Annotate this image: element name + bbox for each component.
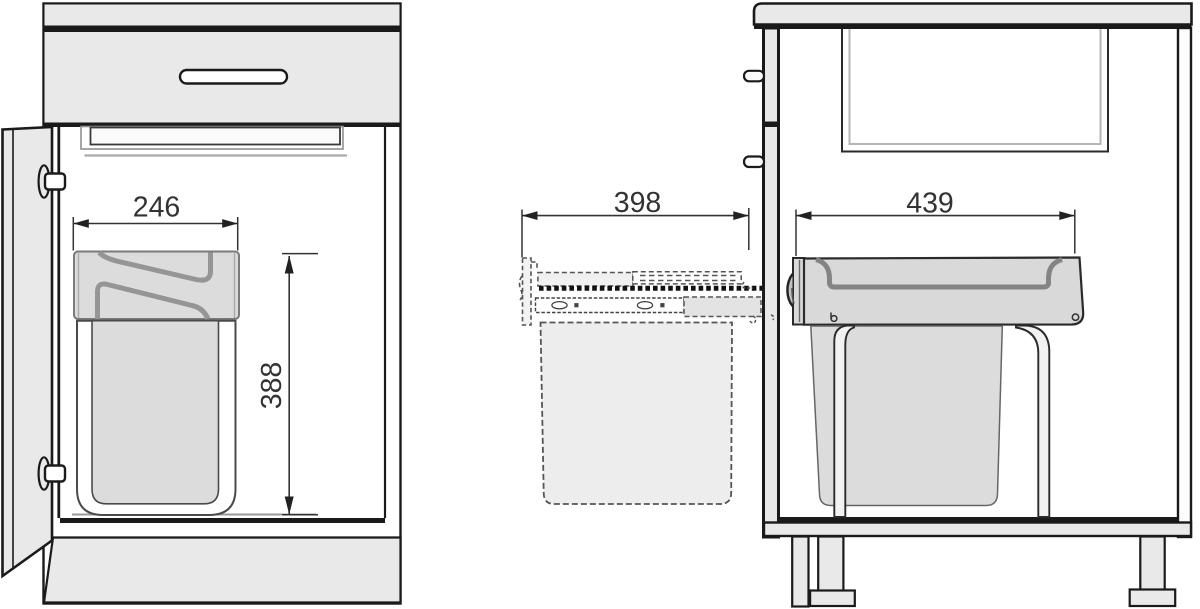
svg-text:398: 398: [614, 187, 662, 219]
svg-text:246: 246: [133, 192, 181, 224]
svg-text:439: 439: [906, 188, 954, 220]
svg-text:388: 388: [256, 362, 288, 410]
